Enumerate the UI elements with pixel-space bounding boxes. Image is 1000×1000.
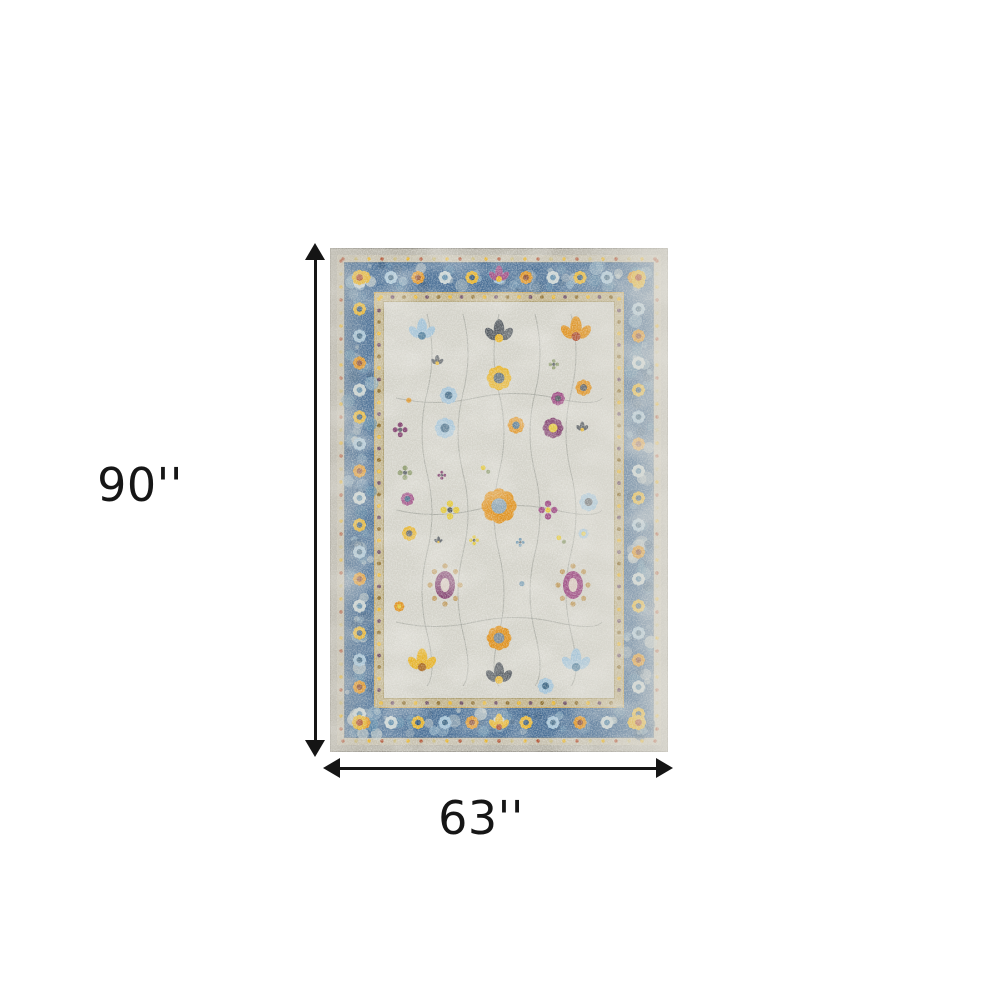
width-dimension-arrow <box>323 755 673 781</box>
arrow-shaft-horizontal <box>335 767 661 771</box>
arrow-right-icon <box>656 758 673 778</box>
arrow-down-icon <box>305 740 325 757</box>
arrow-shaft-vertical <box>314 255 318 745</box>
rug-image <box>330 248 668 752</box>
height-dimension-arrow <box>302 243 328 757</box>
product-image-canvas: 90'' 63'' <box>0 0 1000 1000</box>
height-dimension-label: 90'' <box>76 459 204 512</box>
width-dimension-label: 63'' <box>417 792 545 845</box>
